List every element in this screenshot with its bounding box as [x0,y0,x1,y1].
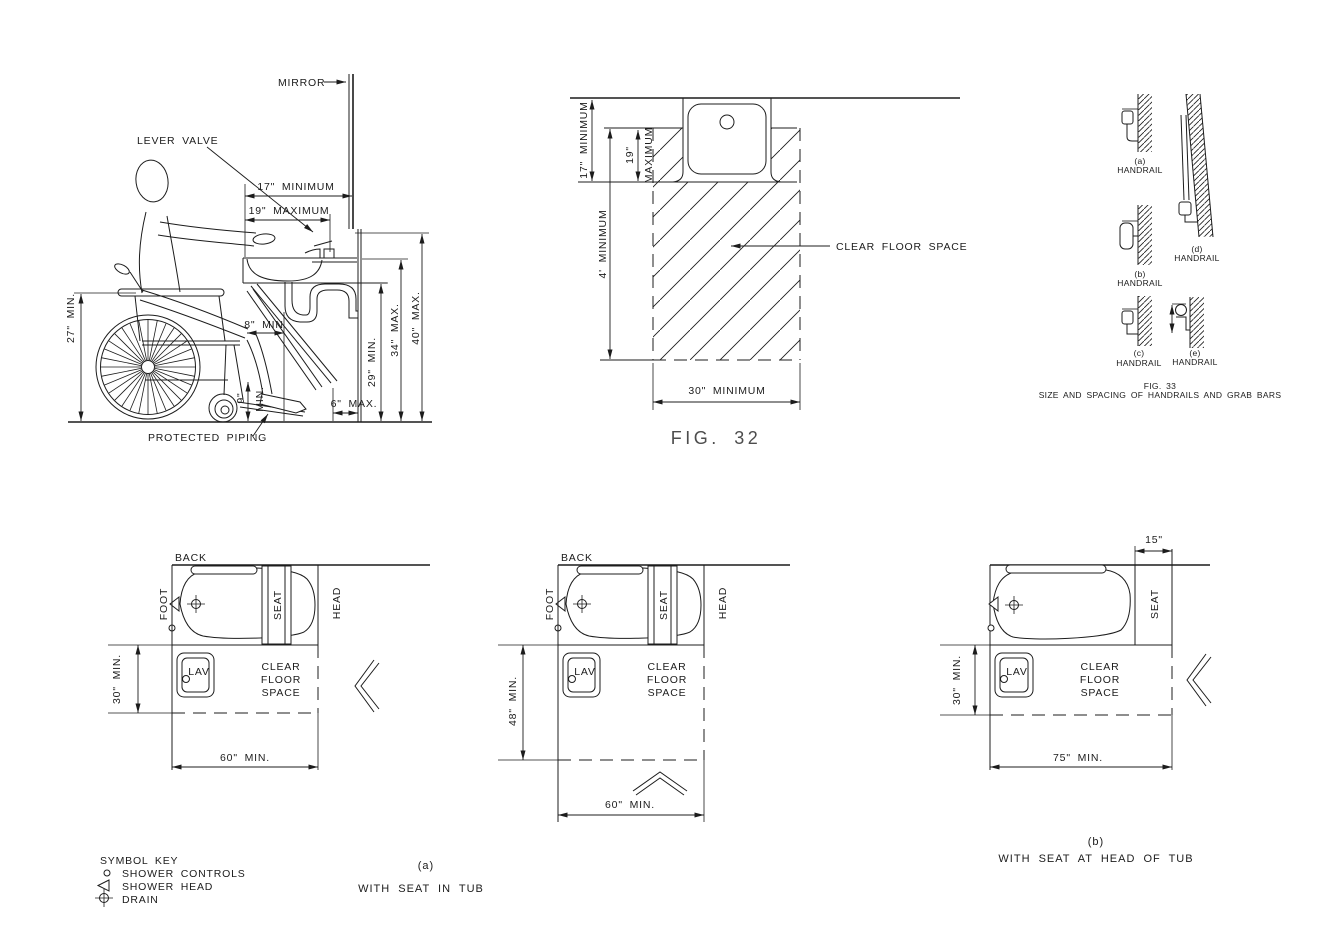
shower-head-icon [170,597,179,611]
dim-19: 19" [624,146,636,164]
symbol-key-item-label: SHOWER CONTROLS [122,868,246,880]
drain-icon [95,889,113,907]
handrail-detail-e: (e) HANDRAIL [1172,297,1218,367]
detail-d-label: HANDRAIL [1174,253,1219,263]
detail-c-label: HANDRAIL [1116,358,1161,368]
clear-floor-line2: FLOOR [1080,674,1120,686]
clear-floor-line3: SPACE [1081,687,1120,699]
detail-b-label: HANDRAIL [1117,278,1162,288]
fig-33-subtitle: SIZE AND SPACING OF HANDRAILS AND GRAB B… [1039,390,1282,400]
grab-bar [191,566,257,574]
sink-plan [673,98,781,182]
shower-head-icon [1187,654,1211,706]
detail-a-label: HANDRAIL [1117,165,1162,175]
p-trap-piping [285,282,358,322]
dim-30-minimum: 30" MINIMUM [688,385,765,397]
clear-floor-space-label: CLEAR FLOOR SPACE [836,241,967,253]
foot [260,394,306,413]
caption-b-tag: (b) [1088,836,1104,848]
handrail-detail-a: (a) HANDRAIL [1117,94,1162,175]
dim-17-min: 17" MINIMUM [257,181,334,193]
caption-a-tag: (a) [418,860,434,872]
back-label: BACK [175,552,207,564]
wheel-spokes [101,320,195,414]
dim-17-minimum: 17" MINIMUM [578,101,590,178]
clear-floor-line2: FLOOR [261,674,301,686]
fig-33-handrails: (a) HANDRAIL (b) HANDRAIL (c) HANDRAIL [1039,94,1282,400]
drain-icon [1005,596,1023,614]
tub-plan-a2: LAV BACK FOOT HEAD SEAT CLEAR FLOOR SPAC… [498,552,790,822]
seat-label: SEAT [272,590,284,620]
lever-valve-label: LEVER VALVE [137,135,218,147]
dim-6-max: 6" MAX. [331,398,378,410]
head-label: HEAD [717,587,729,619]
handrail-detail-d: (d) HANDRAIL [1174,94,1219,263]
shower-head-icon [98,880,109,891]
fig-lavatory-elevation: MIRROR LEVER VALVE PROTECTED PIPING 17" … [65,74,432,444]
dim-60-min: 60" MIN. [220,752,270,764]
clear-floor-line3: SPACE [648,687,687,699]
mirror-label: MIRROR [278,77,325,89]
detail-c-tag: (c) [1134,348,1145,358]
mirror-and-wall [349,74,361,422]
seat-label: SEAT [1149,589,1161,619]
tub-plan-b: LAV SEAT CLEAR FLOOR SPACE 15" 30" MIN. … [940,534,1211,770]
hand [253,233,276,245]
caption-a: WITH SEAT IN TUB [358,883,484,895]
symbol-key-title: SYMBOL KEY [100,855,178,867]
dim-30-min: 30" MIN. [111,654,123,704]
clear-floor-line1: CLEAR [1080,661,1119,673]
clear-floor-line3: SPACE [262,687,301,699]
dim-34-max: 34" MAX. [389,303,401,356]
protected-piping-label: PROTECTED PIPING [148,432,267,444]
head [133,158,171,204]
foot-label: FOOT [544,588,556,620]
drain-icon [187,595,205,613]
fig1-dimensions: 17" MINIMUM 19" MAXIMUM 27" MIN. 8" MIN … [65,181,429,421]
lav-label: LAV [1006,666,1027,678]
detail-e-label: HANDRAIL [1172,357,1217,367]
handrail-detail-c: (c) HANDRAIL [1116,296,1161,368]
shower-head-icon [355,660,379,712]
symbol-key: SYMBOL KEY SHOWER CONTROLS SHOWER HEAD D… [95,855,246,907]
caster-wheel [209,394,237,422]
dim-8-min: 8" MIN [244,319,284,331]
dim-30-min: 30" MIN. [951,655,963,705]
fig-32-plan: CLEAR FLOOR SPACE 17" MINIMUM 19" MAXIMU… [570,98,967,448]
fig-32-caption: FIG. 32 [671,428,762,448]
dim-48-min: 48" MIN. [507,676,519,726]
dim-15: 15" [1145,534,1163,546]
clear-floor-line1: CLEAR [261,661,300,673]
ada-bathroom-standards-drawing: MIRROR LEVER VALVE PROTECTED PIPING 17" … [0,0,1329,925]
lower-leg [255,332,272,394]
dim-9-min: MIN. [254,386,266,411]
drawing-canvas: MIRROR LEVER VALVE PROTECTED PIPING 17" … [0,0,1329,925]
grab-bar [1006,565,1106,573]
armrest [118,289,224,296]
shower-controls-icon [104,870,110,876]
dim-29-min: 29" MIN. [366,337,378,387]
caption-b: WITH SEAT AT HEAD OF TUB [998,853,1193,865]
head-label: HEAD [331,587,343,619]
push-handle [113,262,131,277]
back-label: BACK [561,552,593,564]
shower-controls-icon [988,625,994,631]
dim-19-max: 19" MAXIMUM [249,205,330,217]
shower-head-icon [633,772,687,795]
clear-floor-line2: FLOOR [647,674,687,686]
tub-outline [993,568,1130,639]
tub-fixture-drawing [169,566,315,644]
lav-label: LAV [188,666,209,678]
dim-19-maximum: MAXIMUM [643,127,655,183]
dim-75-min: 75" MIN. [1053,752,1103,764]
symbol-key-item-label: SHOWER HEAD [122,881,213,893]
dim-27-min: 27" MIN. [65,293,77,343]
dim-9: 9" [235,392,247,403]
foot-label: FOOT [158,588,170,620]
clear-floor-line1: CLEAR [647,661,686,673]
dim-4ft-minimum: 4' MINIMUM [597,209,609,278]
seat-label: SEAT [658,590,670,620]
arm [160,222,256,233]
tub-fixture-drawing [555,566,701,644]
symbol-key-item-label: DRAIN [122,894,159,906]
dim-40-max: 40" MAX. [410,291,422,344]
handrail-detail-b: (b) HANDRAIL [1117,205,1162,288]
dim-60-min: 60" MIN. [605,799,655,811]
lav-label: LAV [574,666,595,678]
